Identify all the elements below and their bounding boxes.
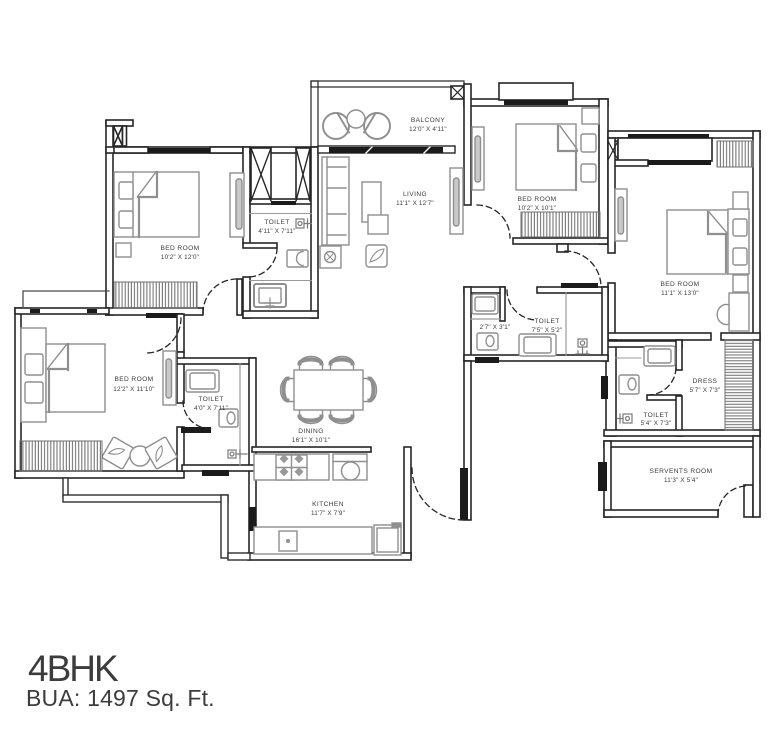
svg-text:7'5" X 5'2": 7'5" X 5'2" bbox=[532, 327, 563, 334]
svg-text:5'4" X 7'3": 5'4" X 7'3" bbox=[641, 420, 672, 427]
svg-text:DRESS: DRESS bbox=[693, 378, 718, 385]
svg-text:KITCHEN: KITCHEN bbox=[312, 501, 344, 508]
svg-text:BED ROOM: BED ROOM bbox=[114, 376, 153, 383]
svg-text:4'0" X 7'11": 4'0" X 7'11" bbox=[194, 405, 228, 412]
svg-text:TOILET: TOILET bbox=[534, 318, 559, 325]
svg-text:2'7" X 3'1": 2'7" X 3'1" bbox=[480, 324, 511, 331]
svg-text:BED ROOM: BED ROOM bbox=[517, 196, 556, 203]
svg-text:DINING: DINING bbox=[298, 428, 323, 435]
svg-text:10'2" X 10'1": 10'2" X 10'1" bbox=[518, 205, 556, 212]
svg-text:BALCONY: BALCONY bbox=[411, 117, 446, 124]
svg-text:BUA: 1497 Sq. Ft.: BUA: 1497 Sq. Ft. bbox=[26, 685, 215, 711]
svg-text:11'1" X 13'0": 11'1" X 13'0" bbox=[661, 290, 699, 297]
svg-text:12'2" X 11'10": 12'2" X 11'10" bbox=[113, 386, 154, 393]
svg-text:11'7" X 7'9": 11'7" X 7'9" bbox=[311, 510, 345, 517]
svg-text:4'11" X 7'11": 4'11" X 7'11" bbox=[258, 228, 295, 235]
svg-text:11'1" X 12'7": 11'1" X 12'7" bbox=[396, 200, 434, 207]
svg-text:TOILET: TOILET bbox=[643, 412, 668, 419]
svg-text:5'7" X 7'3": 5'7" X 7'3" bbox=[690, 387, 721, 394]
svg-text:SERVENTS ROOM: SERVENTS ROOM bbox=[650, 468, 713, 475]
svg-text:LIVING: LIVING bbox=[403, 191, 427, 198]
svg-text:TOILET: TOILET bbox=[198, 396, 223, 403]
svg-text:TOILET: TOILET bbox=[264, 219, 289, 226]
svg-text:10'2" X 12'0": 10'2" X 12'0" bbox=[161, 254, 199, 261]
svg-text:4BHK: 4BHK bbox=[28, 648, 119, 689]
svg-text:BED ROOM: BED ROOM bbox=[660, 281, 699, 288]
svg-text:11'3" X 5'4": 11'3" X 5'4" bbox=[664, 477, 698, 484]
svg-text:16'1" X 10'1": 16'1" X 10'1" bbox=[292, 437, 330, 444]
svg-text:12'0" X 4'11": 12'0" X 4'11" bbox=[409, 126, 447, 133]
svg-text:BED ROOM: BED ROOM bbox=[160, 245, 199, 252]
